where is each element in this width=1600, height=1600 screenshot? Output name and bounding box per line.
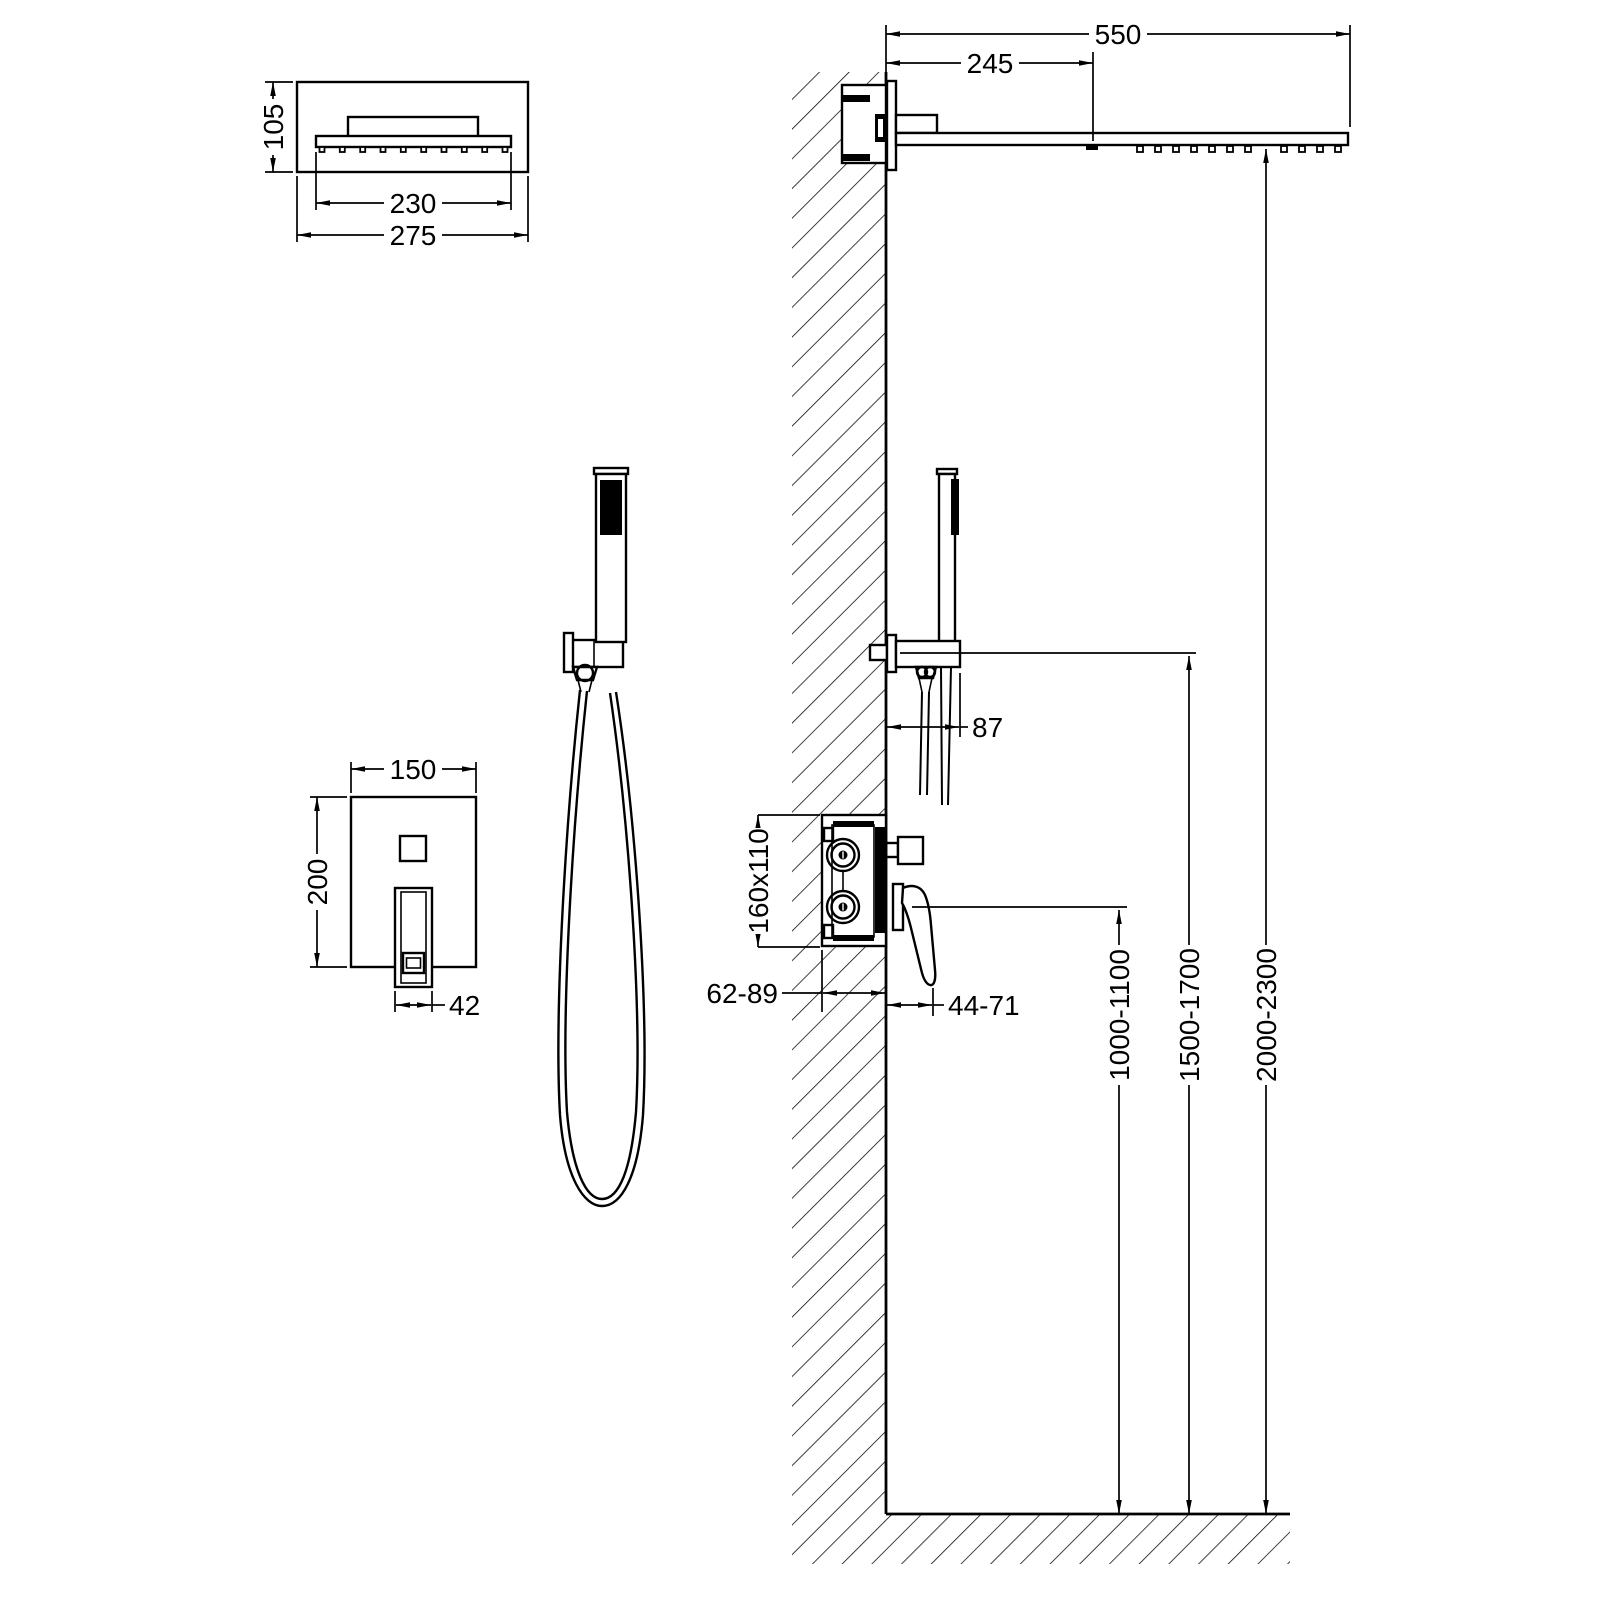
dim-label-200: 200: [302, 859, 333, 906]
dim-label-150: 150: [390, 754, 437, 785]
box-face-plate: [875, 827, 886, 933]
hand-shower-view: [558, 468, 644, 1206]
dim-mixer-height: 1000-1100: [1104, 910, 1135, 1514]
handset-side-spray-face: [951, 479, 959, 535]
technical-drawing-canvas: 105 230 275 1: [0, 0, 1600, 1600]
dim-label-160x110: 160x110: [743, 828, 774, 933]
wall-section: [792, 25, 1290, 1564]
handset-side-view: [870, 469, 1196, 805]
dim-label-275: 275: [390, 220, 437, 251]
holder-block-side: [896, 641, 960, 667]
head-escutcheon: [887, 81, 896, 170]
dim-label-62-89: 62-89: [706, 978, 778, 1009]
dim-label-1000-1100: 1000-1100: [1104, 949, 1135, 1081]
shower-head-front-view: 105 230 275: [258, 82, 528, 251]
hose-outer: [558, 690, 644, 1206]
handset-spray-face: [600, 480, 622, 535]
wall-hatching: [792, 72, 886, 1514]
dim-head-mount-height: 2000-2300: [1251, 149, 1282, 1514]
dim-label-44-71: 44-71: [948, 990, 1020, 1021]
spray-start-mark: [1086, 145, 1098, 150]
handset-holder-block: [572, 640, 623, 667]
dim-lever-reach: 44-71: [887, 988, 1020, 1021]
dim-holder-height: 1500-1700: [1174, 656, 1205, 1514]
head-front-spray-plate: [316, 136, 511, 147]
dim-label-550: 550: [1095, 19, 1142, 50]
dim-mixer-width: 150: [351, 754, 476, 793]
dim-label-42: 42: [449, 990, 480, 1021]
diverter-stem: [886, 843, 898, 857]
diverter-knob-side: [898, 837, 923, 864]
lever-mount: [893, 884, 903, 930]
dim-label-2000-2300: 2000-2300: [1251, 948, 1282, 1082]
hose-drop-lines: [920, 667, 951, 805]
mixer-front-view: 150 200 42: [302, 754, 480, 1021]
dim-label-230: 230: [390, 188, 437, 219]
nozzles-side: [1137, 146, 1341, 152]
valve-connection-bottom: [827, 891, 859, 923]
holder-wall-peg: [870, 645, 887, 660]
valve-connection-top: [827, 839, 859, 871]
dim-label-87: 87: [972, 712, 1003, 743]
shower-system-installation-drawing: 105 230 275 1: [0, 0, 1600, 1600]
dim-label-245: 245: [967, 48, 1014, 79]
diverter-button-front: [400, 836, 426, 861]
mixer-lever-side: [902, 886, 935, 985]
dim-mixer-height: 200: [302, 797, 347, 967]
arm-step: [896, 115, 937, 133]
holder-escutcheon: [887, 635, 896, 672]
head-front-body: [348, 117, 478, 137]
dim-lever-width: 42: [395, 990, 480, 1021]
dim-handset-offset: 87: [887, 673, 1003, 743]
dim-head-height: 105: [258, 82, 293, 172]
overhead-shower-side-view: [842, 81, 1348, 170]
dim-arm-length: 550: [886, 19, 1350, 127]
dim-label-105: 105: [258, 104, 289, 151]
dim-label-1500-1700: 1500-1700: [1174, 948, 1205, 1082]
floor-hatching: [792, 1514, 1290, 1564]
overhead-arm: [896, 133, 1348, 145]
